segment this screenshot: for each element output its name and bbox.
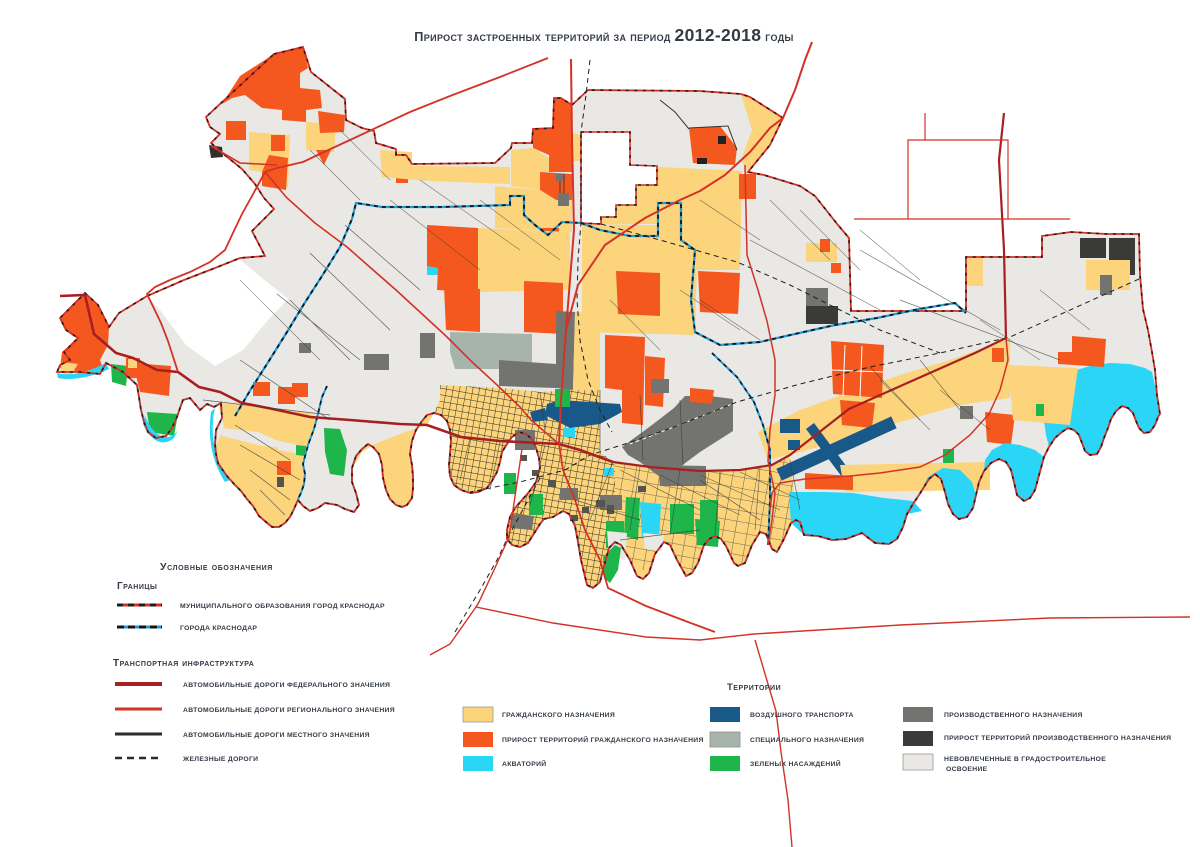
svg-text:ГРАЖДАНСКОГО НАЗНАЧЕНИЯ: ГРАЖДАНСКОГО НАЗНАЧЕНИЯ [502,712,615,719]
svg-text:ПРИРОСТ ТЕРРИТОРИЙ ГРАЖДАНСКОГ: ПРИРОСТ ТЕРРИТОРИЙ ГРАЖДАНСКОГО НАЗНАЧЕН… [502,735,704,744]
svg-text:АКВАТОРИЙ: АКВАТОРИЙ [502,759,546,768]
svg-text:ПРИРОСТ ТЕРРИТОРИЙ ПРОИЗВОДСТВ: ПРИРОСТ ТЕРРИТОРИЙ ПРОИЗВОДСТВЕННОГО НАЗ… [944,733,1171,742]
svg-text:ЗЕЛЕНЫХ НАСАЖДЕНИЙ: ЗЕЛЕНЫХ НАСАЖДЕНИЙ [750,759,841,768]
svg-text:МУНИЦИПАЛЬНОГО ОБРАЗОВАНИЯ ГОР: МУНИЦИПАЛЬНОГО ОБРАЗОВАНИЯ ГОРОД КРАСНОД… [180,603,385,610]
svg-text:ЖЕЛЕЗНЫЕ ДОРОГИ: ЖЕЛЕЗНЫЕ ДОРОГИ [182,756,258,763]
svg-text:СПЕЦИАЛЬНОГО НАЗНАЧЕНИЯ: СПЕЦИАЛЬНОГО НАЗНАЧЕНИЯ [750,737,864,744]
svg-text:Территории: Территории [727,682,781,693]
svg-text:АВТОМОБИЛЬНЫЕ ДОРОГИ РЕГИОНАЛЬ: АВТОМОБИЛЬНЫЕ ДОРОГИ РЕГИОНАЛЬНОГО ЗНАЧЕ… [183,707,395,714]
svg-text:Транспортная инфраструктура: Транспортная инфраструктура [113,658,254,669]
svg-text:Условные обозначения: Условные обозначения [160,561,273,573]
svg-text:АВТОМОБИЛЬНЫЕ ДОРОГИ МЕСТНОГО: АВТОМОБИЛЬНЫЕ ДОРОГИ МЕСТНОГО ЗНАЧЕНИЯ [183,732,370,739]
svg-text:АВТОМОБИЛЬНЫЕ ДОРОГИ ФЕДЕРАЛЬН: АВТОМОБИЛЬНЫЕ ДОРОГИ ФЕДЕРАЛЬНОГО ЗНАЧЕН… [183,682,390,689]
svg-text:ПРОИЗВОДСТВЕННОГО НАЗНАЧЕНИЯ: ПРОИЗВОДСТВЕННОГО НАЗНАЧЕНИЯ [944,712,1083,719]
svg-text:НЕВОВЛЕЧЕННЫЕ В ГРАДОСТРОИТЕЛЬ: НЕВОВЛЕЧЕННЫЕ В ГРАДОСТРОИТЕЛЬНОЕ [944,756,1106,763]
svg-text:ГОРОДА КРАСНОДАР: ГОРОДА КРАСНОДАР [180,625,257,632]
svg-text:ОСВОЕНИЕ: ОСВОЕНИЕ [946,766,988,773]
svg-text:ВОЗДУШНОГО ТРАНСПОРТА: ВОЗДУШНОГО ТРАНСПОРТА [750,712,854,719]
svg-text:Границы: Границы [117,581,157,592]
